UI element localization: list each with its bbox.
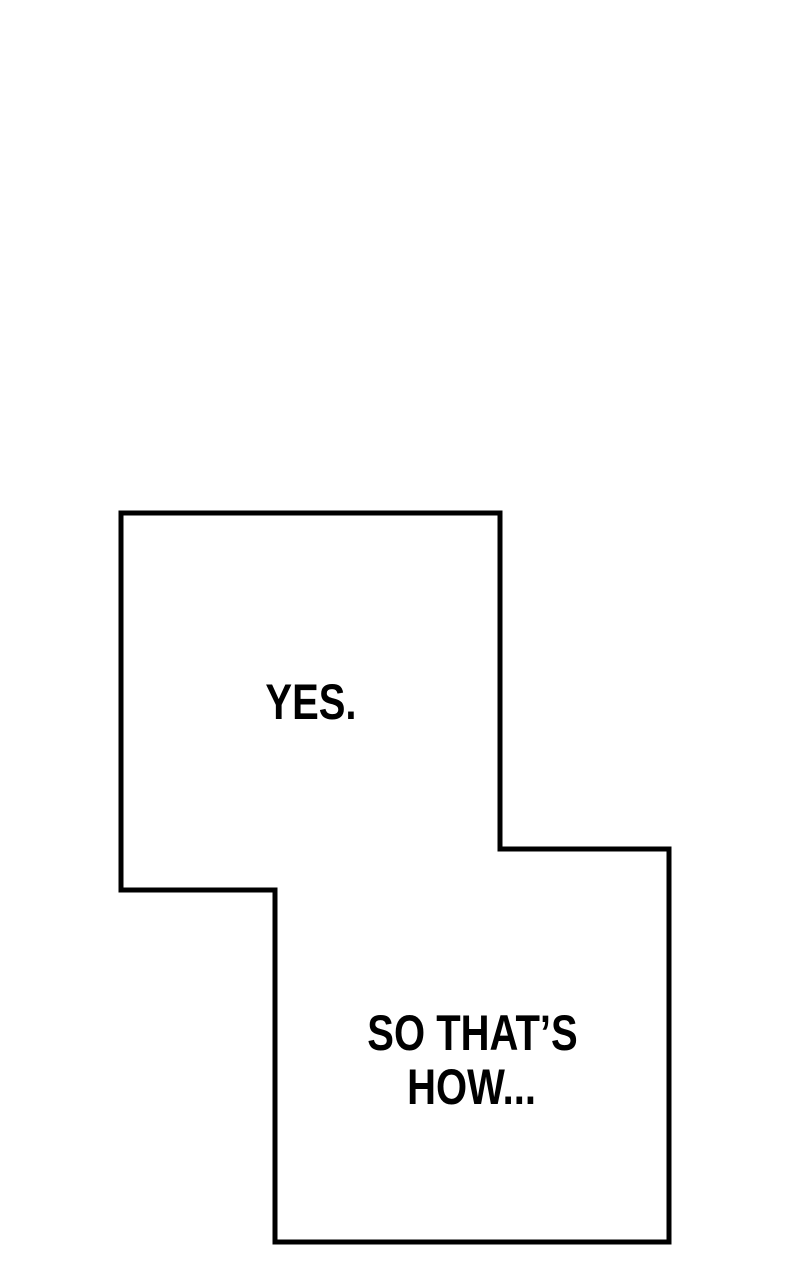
speech-text-line-2: HOW... (408, 1060, 537, 1114)
speech-text-yes: YES. (265, 675, 356, 729)
speech-panel-so-thats-how: SO THAT’S HOW... (277, 851, 667, 1240)
comic-page: YES. SO THAT’S HOW... (0, 0, 800, 1280)
speech-text-line-1: SO THAT’S (367, 1006, 577, 1060)
speech-panel-yes: YES. (121, 513, 500, 890)
